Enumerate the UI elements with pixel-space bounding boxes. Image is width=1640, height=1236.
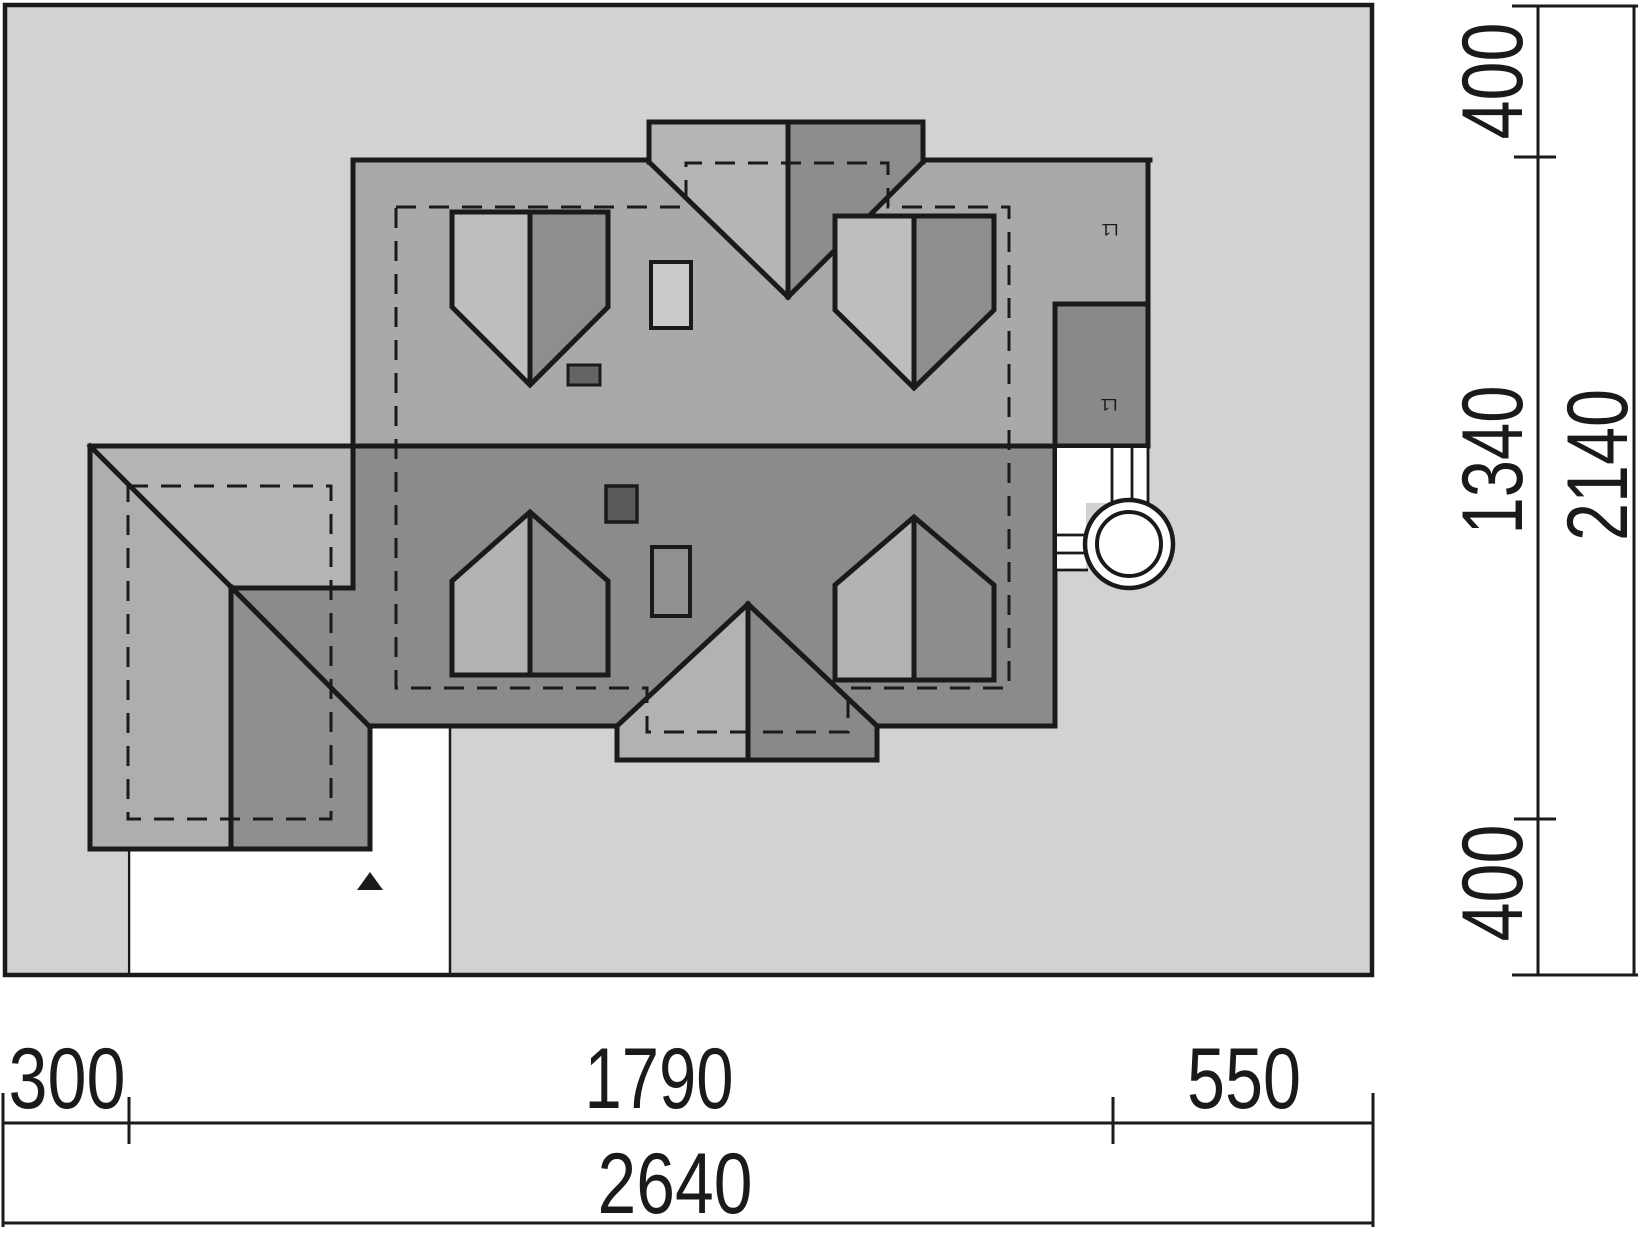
dim-label-300: 300 [9, 1031, 126, 1127]
roof-mark-lower-label: L1 [1101, 395, 1118, 414]
site-plan-page: L1 L1 300 1790 550 2640 400 1340 400 214… [0, 0, 1640, 1236]
vent-chimney-lower [606, 486, 637, 522]
roof-hatch-upper [651, 262, 691, 328]
chimney-block [1055, 304, 1148, 446]
dim-label-2140: 2140 [1550, 389, 1640, 541]
vent-chimney-upper [568, 365, 600, 385]
dim-label-550: 550 [1187, 1031, 1301, 1127]
dim-label-2640: 2640 [598, 1136, 753, 1232]
site-plan-drawing: L1 L1 300 1790 550 2640 400 1340 400 214… [0, 0, 1640, 1236]
roof-hatch-lower [652, 547, 690, 616]
dim-label-1790: 1790 [585, 1031, 734, 1127]
dim-label-400-top: 400 [1445, 23, 1541, 140]
dim-label-400-bottom: 400 [1445, 825, 1541, 942]
dim-label-1340: 1340 [1445, 386, 1541, 535]
roof-mark-upper-label: L1 [1102, 220, 1119, 239]
